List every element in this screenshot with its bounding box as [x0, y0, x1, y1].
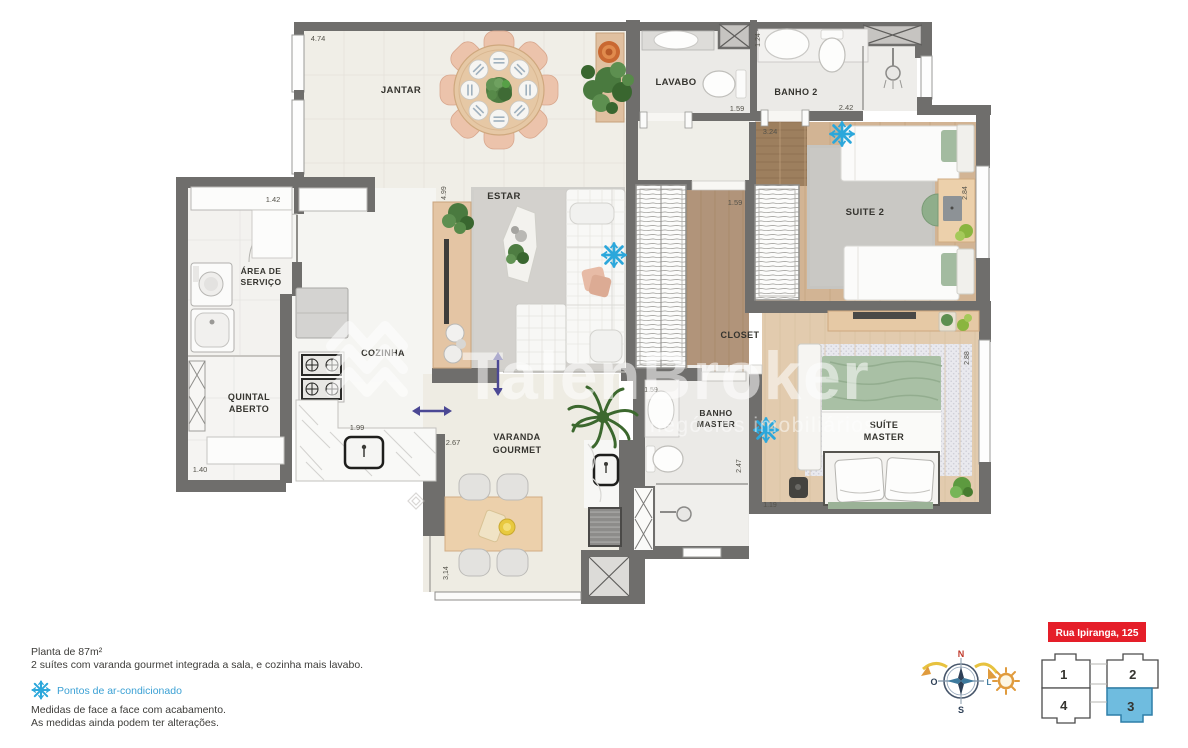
svg-text:2: 2	[1129, 667, 1137, 682]
svg-text:1.40: 1.40	[193, 465, 208, 474]
svg-text:Planta de 87m²: Planta de 87m²	[31, 646, 103, 658]
svg-text:2 suítes com varanda gourmet i: 2 suítes com varanda gourmet integrada a…	[31, 659, 363, 671]
svg-text:ABERTO: ABERTO	[229, 404, 269, 414]
svg-text:3.24: 3.24	[763, 127, 778, 136]
svg-text:ÁREA DE: ÁREA DE	[241, 266, 282, 276]
svg-text:1.59: 1.59	[730, 104, 745, 113]
svg-text:2.84: 2.84	[962, 186, 969, 200]
svg-text:1.42: 1.42	[266, 195, 281, 204]
svg-text:Rua Ipiranga, 125: Rua Ipiranga, 125	[1056, 628, 1139, 639]
svg-text:GOURMET: GOURMET	[493, 445, 542, 455]
svg-text:LAVABO: LAVABO	[655, 77, 696, 88]
svg-text:JANTAR: JANTAR	[381, 85, 421, 96]
svg-text:3: 3	[1127, 699, 1135, 714]
svg-text:SUITE 2: SUITE 2	[846, 207, 885, 218]
svg-text:1: 1	[1060, 667, 1068, 682]
svg-text:O: O	[930, 677, 937, 687]
svg-text:S: S	[958, 705, 964, 715]
svg-text:2.67: 2.67	[446, 438, 461, 447]
svg-text:4.99: 4.99	[441, 186, 448, 200]
svg-text:3,14: 3,14	[443, 566, 450, 580]
svg-text:L: L	[987, 678, 992, 687]
svg-text:Medidas de face a face com aca: Medidas de face a face com acabamento.	[31, 704, 226, 716]
svg-text:1.24: 1.24	[755, 33, 762, 47]
svg-text:1.59: 1.59	[728, 198, 743, 207]
svg-text:SERVIÇO: SERVIÇO	[241, 277, 282, 287]
svg-text:1.19: 1.19	[763, 502, 777, 509]
svg-text:N: N	[958, 649, 965, 659]
svg-text:2.42: 2.42	[839, 103, 854, 112]
svg-text:QUINTAL: QUINTAL	[228, 392, 270, 402]
svg-text:4.74: 4.74	[311, 34, 326, 43]
svg-text:TalenBroker: TalenBroker	[462, 338, 870, 414]
svg-text:BANHO 2: BANHO 2	[774, 87, 817, 97]
svg-text:4: 4	[1060, 698, 1068, 713]
svg-text:ESTAR: ESTAR	[487, 191, 521, 202]
svg-text:1.99: 1.99	[350, 423, 365, 432]
svg-text:2.47: 2.47	[736, 459, 743, 473]
svg-text:2.88: 2.88	[964, 351, 971, 365]
svg-text:VARANDA: VARANDA	[493, 432, 540, 442]
svg-text:Pontos de ar-condicionado: Pontos de ar-condicionado	[57, 685, 182, 697]
svg-text:As medidas ainda podem ter alt: As medidas ainda podem ter alterações.	[31, 717, 219, 729]
svg-text:negócios imobiliários: negócios imobiliários	[650, 414, 876, 437]
